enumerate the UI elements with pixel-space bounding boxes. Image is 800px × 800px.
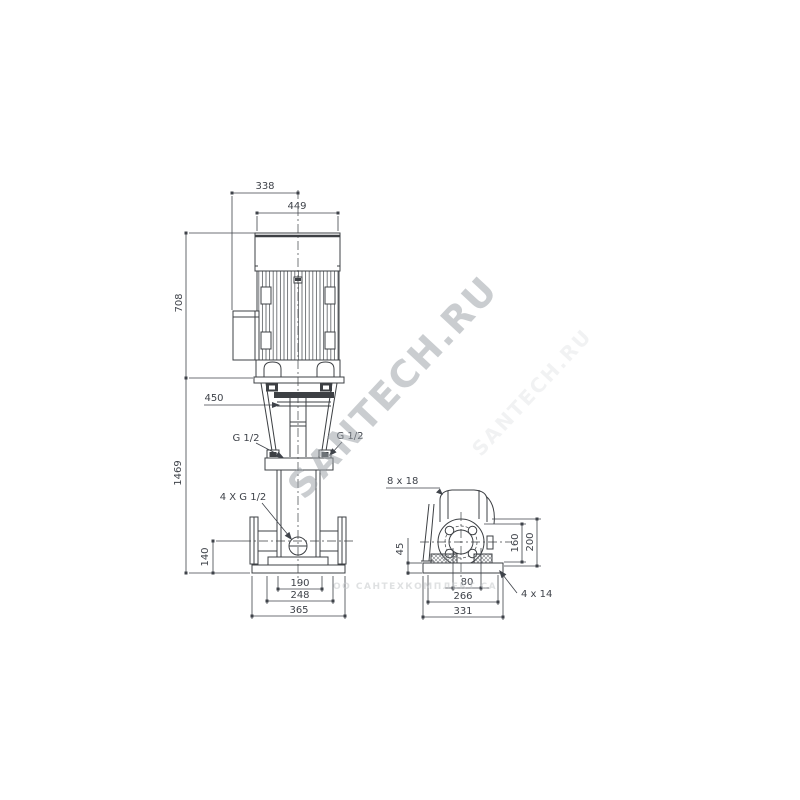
- pump-base: [252, 557, 345, 573]
- dim-label-266: 266: [453, 591, 472, 602]
- dim-label-331: 331: [453, 606, 472, 617]
- dim-motor-width: 449: [256, 201, 340, 231]
- dim-label-708: 708: [174, 293, 185, 312]
- dim-label-365: 365: [289, 605, 308, 616]
- dim-base-height: 45: [395, 538, 422, 575]
- port-label-left: G 1/2: [232, 433, 259, 444]
- dim-total-height: 1469: [173, 378, 250, 575]
- leader-stool-holes: 8 x 18: [386, 476, 443, 495]
- dim-label-1469: 1469: [173, 460, 184, 485]
- pump-dimensional-drawing: 338 449 708 1469: [0, 0, 800, 800]
- leader-base-holes: 4 x 14: [499, 570, 552, 600]
- motor-fan-cover: [255, 233, 340, 271]
- front-view: 338 449 708 1469: [173, 181, 364, 619]
- dim-label-190: 190: [290, 578, 309, 589]
- dim-label-338: 338: [255, 181, 274, 192]
- dim-label-449: 449: [287, 201, 306, 212]
- dim-label-450: 450: [204, 393, 223, 404]
- watermark-strip: ОО САНТЕХКОМПЛЕКТ СА: [333, 582, 497, 592]
- dim-label-248: 248: [290, 590, 309, 601]
- pump-dimensional-drawing-page: 338 449 708 1469: [0, 0, 800, 800]
- watermark-secondary: SANTECH.RU: [467, 324, 597, 461]
- dim-label-45: 45: [395, 543, 406, 556]
- dim-label-4xg12: 4 X G 1/2: [220, 492, 267, 503]
- terminal-box: [233, 311, 259, 360]
- dim-port-height: 140: [200, 540, 242, 575]
- dim-label-140: 140: [200, 547, 211, 566]
- dim-label-160: 160: [510, 533, 521, 552]
- bolt-hole: [445, 526, 454, 535]
- dim-label-4x14: 4 x 14: [521, 589, 552, 600]
- bolt-hole: [468, 526, 477, 535]
- dim-label-8x18: 8 x 18: [387, 476, 418, 487]
- side-view: 8 x 18 45 160 200: [386, 476, 552, 620]
- dim-label-200: 200: [525, 532, 536, 551]
